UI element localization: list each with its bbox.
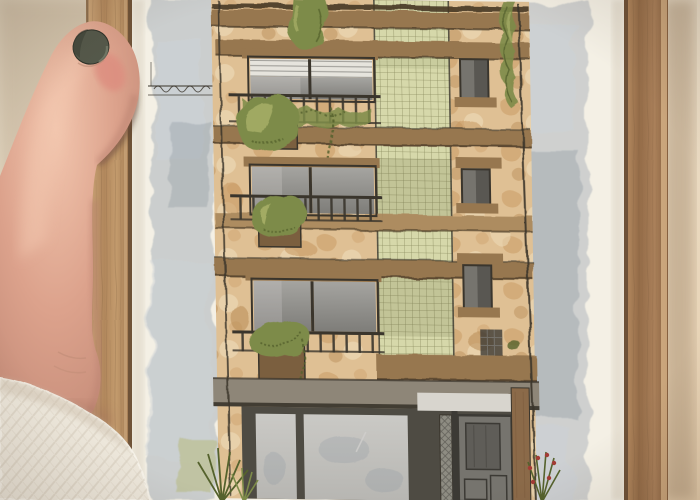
photo-canvas — [0, 0, 700, 500]
photo-vignette — [0, 0, 700, 500]
photo-scene: A hand with dark-polished thumbnail and … — [0, 0, 700, 500]
